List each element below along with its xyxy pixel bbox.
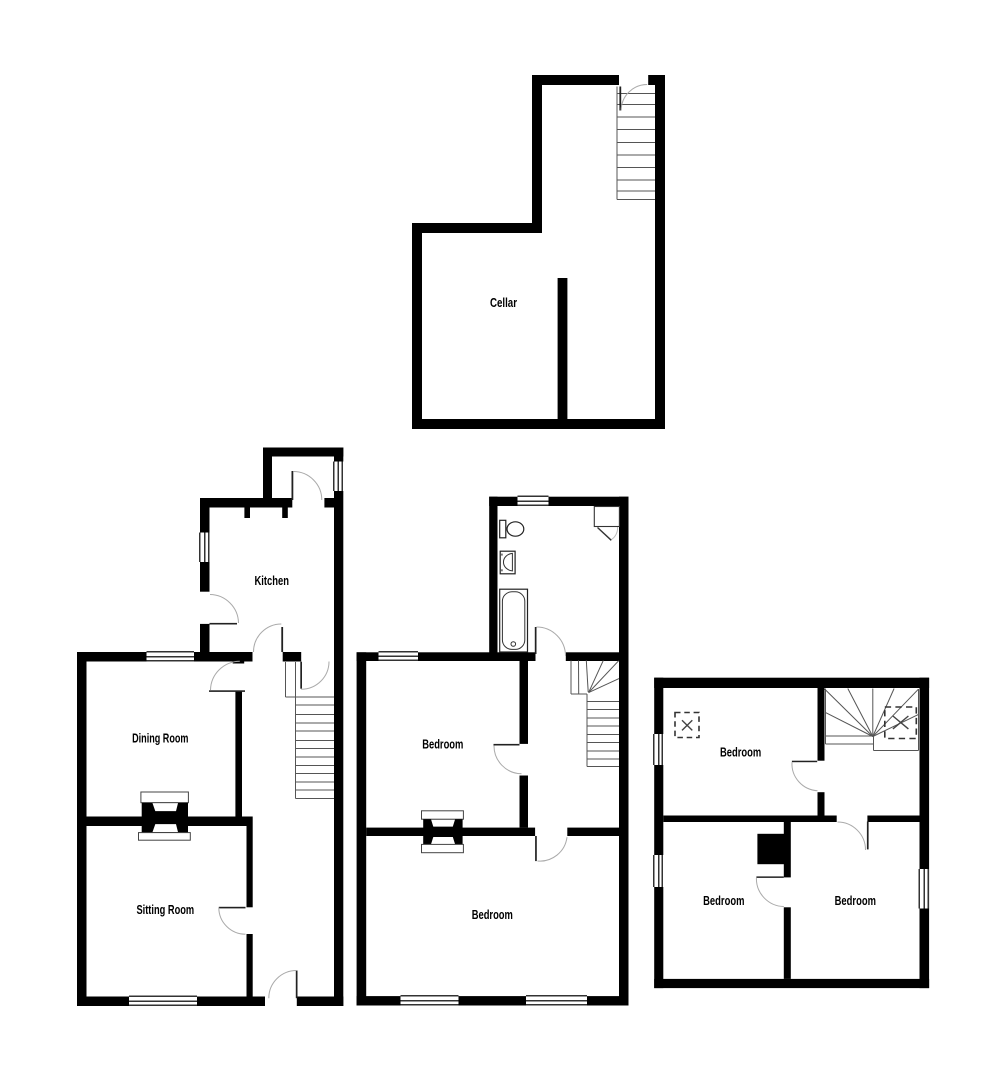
svg-text:Cellar: Cellar — [490, 295, 517, 310]
svg-text:Kitchen: Kitchen — [254, 574, 289, 588]
svg-text:Sitting Room: Sitting Room — [136, 903, 194, 917]
svg-text:Bedroom: Bedroom — [720, 746, 761, 760]
svg-text:Bedroom: Bedroom — [703, 894, 744, 908]
svg-text:Dining Room: Dining Room — [132, 732, 188, 746]
svg-text:Bedroom: Bedroom — [422, 738, 463, 752]
svg-text:Bedroom: Bedroom — [835, 894, 876, 908]
svg-text:Bedroom: Bedroom — [472, 908, 513, 922]
